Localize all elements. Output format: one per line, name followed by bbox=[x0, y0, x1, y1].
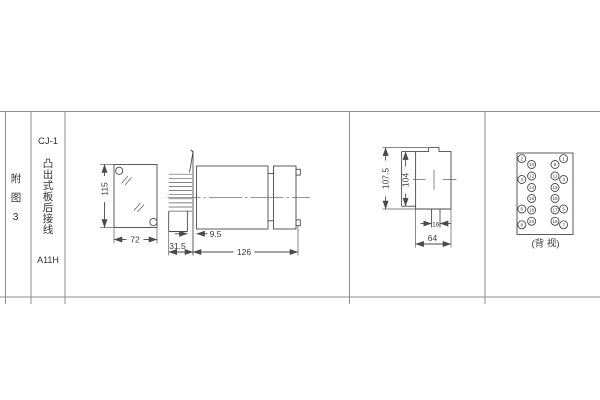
terminal-2: 2 bbox=[521, 156, 524, 161]
terminal-12: 12 bbox=[529, 174, 535, 179]
dim-terminal-depth: 31.5 bbox=[169, 232, 193, 256]
dim-label-31-5: 31.5 bbox=[169, 241, 186, 251]
dim-front-height: 115 bbox=[100, 165, 114, 228]
rear-tab-top bbox=[296, 169, 300, 175]
dim-label-107-5: 107.5 bbox=[381, 168, 391, 190]
technical-drawing-canvas: 115 72 bbox=[0, 0, 600, 400]
side-view-drawing: 9.5 31.5 126 bbox=[168, 150, 311, 257]
dim-notch-width: 16 bbox=[421, 221, 452, 228]
terminal-circles: 2 4 6 8 1 3 5 7 10 12 14 16 18 20 9 11 1… bbox=[518, 155, 568, 229]
terminal-18: 18 bbox=[529, 208, 535, 213]
terminal-block bbox=[169, 211, 188, 231]
terminal-17: 17 bbox=[552, 208, 558, 213]
dim-label-104: 104 bbox=[401, 173, 411, 187]
back-view-drawing: 2 4 6 8 1 3 5 7 10 12 14 16 18 20 9 11 1… bbox=[517, 153, 573, 250]
dim-label-115: 115 bbox=[100, 182, 110, 196]
terminal-7: 7 bbox=[562, 223, 565, 228]
terminal-20: 20 bbox=[529, 219, 535, 224]
table-grid bbox=[0, 112, 600, 305]
back-view-caption: (背 视) bbox=[532, 238, 560, 250]
terminal-14: 14 bbox=[529, 185, 535, 190]
spring-clip bbox=[190, 150, 194, 173]
dim-front-width: 72 bbox=[114, 228, 157, 245]
profile-view-drawing: 107.5 104 16 64 bbox=[381, 148, 457, 248]
terminal-fins bbox=[169, 174, 192, 211]
dim-label-16: 16 bbox=[432, 221, 440, 228]
terminal-6: 6 bbox=[521, 207, 524, 212]
dim-label-64: 64 bbox=[428, 233, 438, 243]
dim-body-length: 126 bbox=[193, 247, 298, 257]
terminal-16: 16 bbox=[529, 196, 535, 201]
dim-panel-gap: 9.5 bbox=[175, 229, 222, 239]
dim-label-72: 72 bbox=[130, 235, 140, 245]
dim-label-9-5: 9.5 bbox=[210, 229, 222, 239]
glass-hatch-marks bbox=[122, 176, 145, 212]
dim-label-126: 126 bbox=[237, 247, 251, 257]
terminal-13: 13 bbox=[552, 185, 558, 190]
terminal-9: 9 bbox=[554, 162, 557, 167]
mount-hole-top-left bbox=[116, 167, 123, 174]
terminal-1: 1 bbox=[562, 156, 565, 161]
terminal-15: 15 bbox=[552, 196, 558, 201]
terminal-19: 19 bbox=[552, 219, 558, 224]
terminal-5: 5 bbox=[562, 207, 565, 212]
centerline-profile bbox=[413, 170, 457, 190]
terminal-3: 3 bbox=[562, 177, 565, 182]
terminal-4: 4 bbox=[521, 177, 524, 182]
terminal-8: 8 bbox=[521, 223, 524, 228]
rear-tab-bottom bbox=[296, 220, 300, 226]
dim-inner-height: 104 bbox=[401, 152, 411, 207]
terminal-10: 10 bbox=[529, 162, 535, 167]
front-view-drawing: 115 72 bbox=[100, 165, 158, 245]
terminal-11: 11 bbox=[553, 174, 558, 179]
figure-page: 附图3 CJ-1 凸出式板后接线 A11H bbox=[0, 0, 600, 400]
mount-hole-bottom-right bbox=[150, 218, 157, 225]
